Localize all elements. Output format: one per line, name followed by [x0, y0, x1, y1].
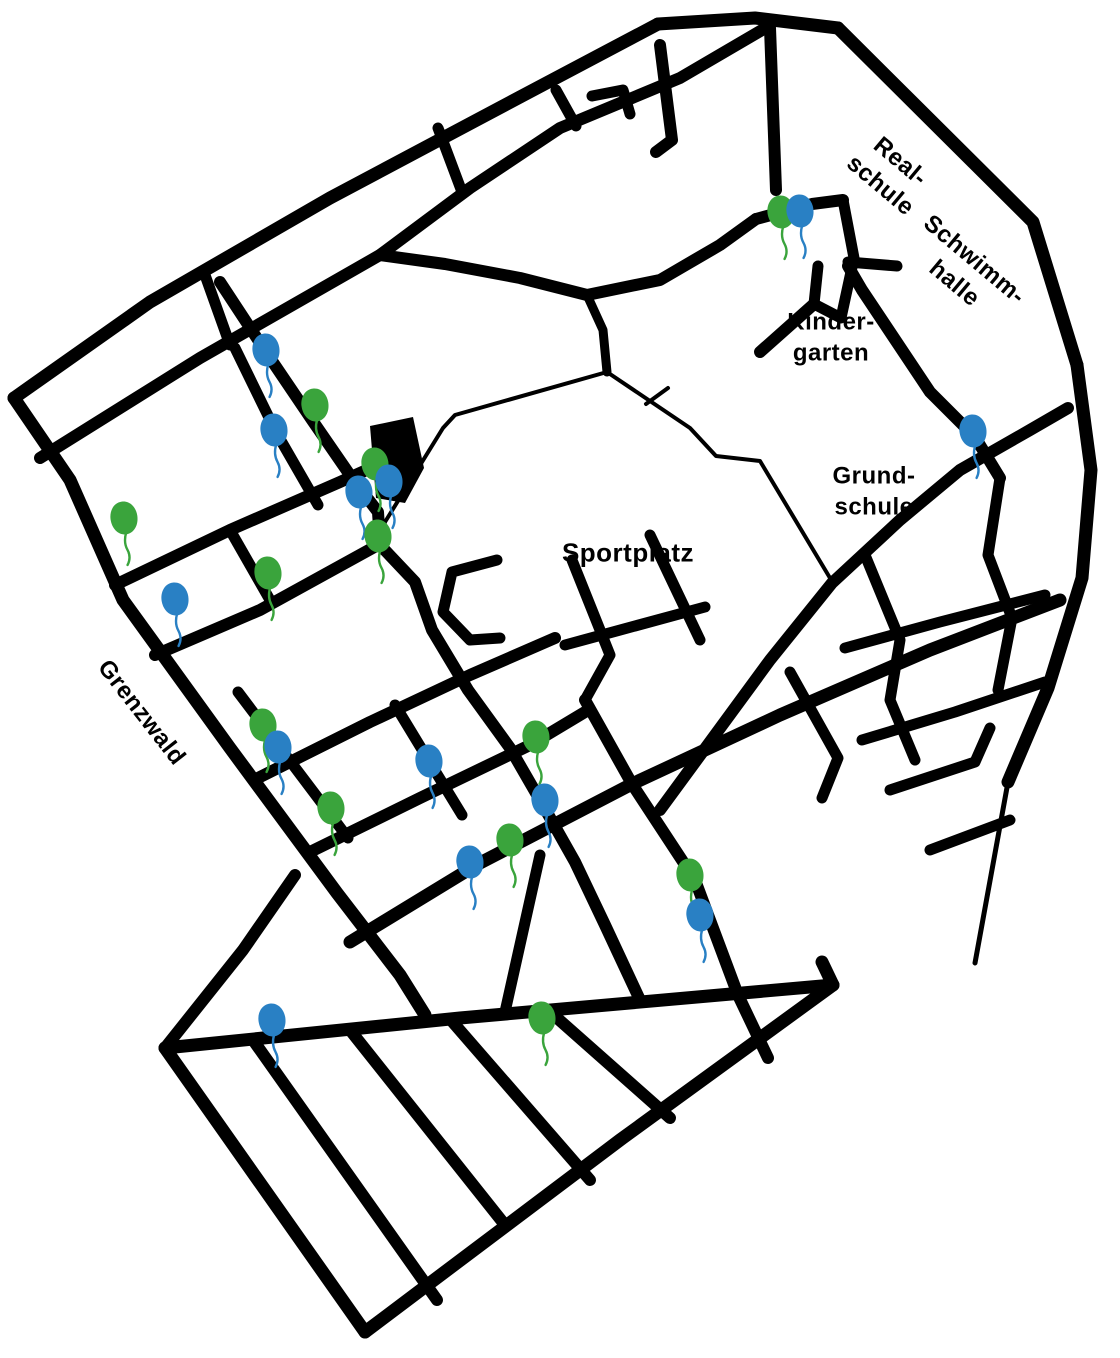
- road-segment: [988, 478, 1012, 690]
- balloon-string: [509, 855, 517, 887]
- road-segment: [565, 607, 705, 645]
- road-segment: [548, 1010, 670, 1118]
- road-segment: [587, 295, 607, 372]
- road-segment: [505, 855, 540, 1012]
- balloon-body: [108, 500, 139, 536]
- balloon-string: [699, 930, 707, 962]
- road-segment: [848, 262, 897, 266]
- road-segment: [40, 30, 762, 458]
- map-canvas: [0, 0, 1120, 1358]
- roads-layer: [14, 18, 1091, 1332]
- balloon-string: [469, 877, 477, 909]
- road-segment: [380, 219, 756, 295]
- street-map: Sportplatz Kinder- garten Grund- schule …: [0, 0, 1120, 1358]
- balloon-string: [541, 1033, 549, 1065]
- road-segment: [1008, 365, 1091, 782]
- balloon-string: [780, 227, 788, 259]
- road-segment: [165, 1048, 365, 1332]
- road-segment: [658, 18, 838, 28]
- road-segment: [443, 560, 500, 640]
- balloon-string: [535, 752, 543, 784]
- balloon-string: [273, 445, 281, 477]
- balloon-string: [799, 226, 807, 258]
- road-segment: [770, 28, 776, 190]
- path-thin-line: [975, 782, 1008, 963]
- road-segment: [656, 45, 672, 152]
- green-balloon-marker: [108, 500, 144, 567]
- balloon-body: [159, 581, 190, 617]
- road-segment: [380, 545, 640, 1000]
- balloon-string: [123, 533, 131, 565]
- path-thin-line: [646, 388, 668, 404]
- road-segment: [365, 985, 833, 1332]
- road-segment: [450, 1019, 590, 1180]
- road-segment: [760, 304, 814, 352]
- path-thin-line: [607, 372, 830, 578]
- road-segment: [14, 24, 658, 398]
- road-segment: [253, 1040, 437, 1300]
